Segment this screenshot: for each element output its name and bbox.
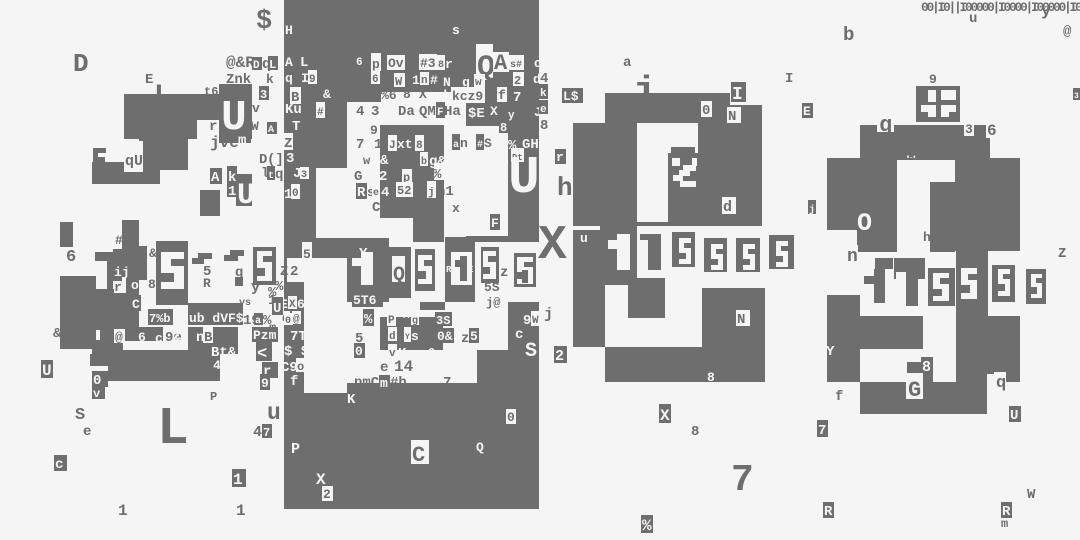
svg-text:7: 7 — [513, 90, 521, 106]
svg-text:3: 3 — [965, 122, 973, 137]
svg-text:a: a — [255, 316, 261, 327]
svg-text:u: u — [267, 400, 281, 426]
svg-text:U: U — [237, 179, 255, 213]
svg-text:5: 5 — [470, 329, 478, 344]
svg-text:2: 2 — [514, 74, 521, 88]
svg-text:Da: Da — [398, 104, 415, 120]
svg-text:u: u — [969, 11, 977, 27]
svg-text:Z: Z — [280, 264, 288, 280]
svg-text:y: y — [508, 110, 515, 122]
svg-text:ij: ij — [114, 265, 130, 280]
svg-text:3: 3 — [301, 170, 307, 181]
svg-text:k: k — [540, 88, 547, 100]
svg-text:L: L — [154, 81, 171, 112]
svg-text:P: P — [291, 441, 300, 458]
svg-text:j: j — [633, 71, 656, 114]
svg-text:&: & — [323, 87, 331, 102]
svg-text:0&: 0& — [437, 329, 453, 344]
svg-text:b: b — [421, 156, 427, 168]
svg-text:W: W — [251, 119, 259, 134]
svg-text:<: < — [257, 345, 267, 364]
svg-text:&: & — [380, 153, 389, 169]
svg-text:3: 3 — [286, 151, 294, 167]
svg-text:(]: (] — [267, 152, 284, 168]
svg-text:e: e — [540, 104, 547, 116]
svg-text:ub dVF$: ub dVF$ — [189, 311, 244, 326]
svg-text:52: 52 — [397, 184, 411, 198]
svg-text:2: 2 — [290, 264, 298, 280]
svg-text:S: S — [484, 136, 492, 151]
svg-text:1: 1 — [118, 502, 128, 520]
svg-text:I: I — [301, 71, 309, 86]
svg-text:a: a — [623, 55, 632, 71]
svg-text:g: g — [879, 113, 892, 138]
svg-text:W: W — [532, 315, 539, 327]
svg-text:r: r — [556, 150, 564, 165]
svg-text:n: n — [460, 136, 468, 151]
svg-text:7: 7 — [443, 375, 451, 391]
svg-text:j: j — [428, 187, 435, 199]
svg-text:G: G — [354, 169, 362, 185]
svg-text:%: % — [433, 167, 442, 183]
svg-text:q: q — [996, 374, 1006, 393]
svg-text:P: P — [210, 390, 217, 404]
svg-text:U: U — [1010, 408, 1018, 424]
svg-text:Y: Y — [826, 344, 835, 360]
svg-text:Ov: Ov — [388, 56, 404, 71]
svg-text:8: 8 — [416, 140, 423, 152]
svg-text:p: p — [372, 57, 380, 72]
svg-text:0: 0 — [702, 103, 710, 119]
svg-text:j: j — [809, 204, 815, 216]
svg-text:&: & — [149, 246, 157, 261]
svg-text:3: 3 — [260, 88, 267, 102]
svg-text:1: 1 — [374, 137, 382, 153]
svg-text:A: A — [494, 51, 508, 76]
svg-text:5T6: 5T6 — [353, 293, 377, 308]
svg-text:I: I — [732, 85, 743, 105]
svg-text:n: n — [847, 247, 858, 267]
svg-text:u: u — [580, 231, 588, 246]
svg-text:1: 1 — [233, 471, 243, 489]
svg-text:U: U — [508, 148, 540, 208]
svg-text:$ $: $ $ — [284, 344, 309, 360]
svg-text:pmC: pmC — [354, 375, 380, 391]
svg-text:n: n — [421, 75, 428, 87]
svg-text:9: 9 — [309, 74, 316, 86]
svg-text:t: t — [268, 171, 274, 182]
svg-text:jve: jve — [210, 134, 239, 152]
svg-text:6: 6 — [372, 74, 379, 86]
svg-text:f: f — [498, 88, 506, 103]
svg-text:7: 7 — [356, 137, 364, 153]
svg-text:L: L — [157, 399, 189, 459]
svg-text:9: 9 — [929, 72, 937, 87]
svg-text:#h: #h — [390, 375, 407, 391]
svg-text:Ku: Ku — [285, 102, 302, 118]
svg-text:2: 2 — [379, 169, 387, 185]
svg-text:A: A — [268, 125, 274, 136]
svg-text:2: 2 — [555, 348, 564, 365]
svg-text:1: 1 — [236, 502, 246, 520]
svg-text:%: % — [364, 312, 373, 328]
svg-text:H: H — [285, 23, 293, 38]
svg-text:00|I0||I00000|I0000|I00000|I0: 00|I0||I00000|I0000|I00000|I0 — [921, 0, 1080, 15]
svg-text:y: y — [251, 279, 260, 296]
svg-text:0: 0 — [507, 410, 515, 425]
svg-text:P: P — [388, 315, 395, 327]
svg-text:E: E — [803, 104, 811, 119]
svg-text:T: T — [292, 119, 300, 135]
svg-text:9: 9 — [261, 376, 269, 391]
svg-text:qU: qU — [125, 153, 143, 170]
svg-text:8: 8 — [707, 370, 715, 385]
svg-text:C: C — [372, 200, 381, 216]
svg-text:2: 2 — [323, 487, 331, 502]
svg-text:14: 14 — [394, 358, 414, 376]
svg-text:c: c — [55, 457, 63, 473]
svg-text:X: X — [490, 104, 498, 119]
svg-text:E: E — [468, 265, 474, 275]
svg-text:&: & — [53, 326, 62, 342]
svg-text:m: m — [1001, 517, 1008, 531]
svg-text:L: L — [443, 87, 451, 102]
svg-text:N: N — [728, 109, 736, 125]
svg-text:#: # — [115, 233, 123, 248]
svg-text:v: v — [93, 387, 100, 401]
svg-text:F: F — [491, 216, 499, 231]
svg-text:Q: Q — [476, 440, 484, 455]
svg-text:8: 8 — [691, 424, 699, 440]
svg-text:@: @ — [115, 330, 123, 345]
svg-text:9: 9 — [370, 123, 378, 138]
svg-text:e: e — [83, 424, 91, 440]
svg-text:em: em — [163, 251, 174, 261]
svg-text:d: d — [723, 199, 732, 216]
svg-text:F: F — [437, 107, 444, 119]
svg-text:0: 0 — [292, 188, 299, 200]
svg-text:h: h — [557, 173, 573, 203]
svg-text:Znk: Znk — [226, 72, 251, 88]
svg-text:S: S — [525, 340, 537, 363]
svg-text:4: 4 — [253, 424, 262, 441]
svg-text:%: % — [642, 517, 652, 535]
svg-text:X: X — [419, 87, 427, 102]
svg-text:E: E — [145, 72, 153, 88]
svg-text:t6: t6 — [204, 85, 218, 99]
svg-text:Ha: Ha — [444, 104, 461, 120]
svg-text:Y: Y — [405, 333, 410, 342]
svg-text:Z: Z — [172, 329, 181, 346]
svg-text:D: D — [253, 60, 260, 72]
svg-text:#: # — [430, 73, 438, 88]
svg-text:A: A — [211, 170, 220, 186]
svg-text:R: R — [203, 276, 211, 291]
svg-text:m: m — [269, 321, 276, 335]
svg-text:7: 7 — [731, 459, 754, 502]
svg-text:L: L — [269, 58, 276, 72]
svg-text:7%b: 7%b — [149, 312, 171, 326]
svg-text:x: x — [452, 201, 460, 216]
svg-text:7: 7 — [818, 423, 826, 439]
svg-text:@&R: @&R — [226, 54, 255, 72]
svg-text:O: O — [857, 209, 872, 238]
svg-text:@: @ — [1063, 24, 1072, 40]
svg-text:B: B — [204, 330, 213, 346]
svg-text:8: 8 — [403, 87, 411, 102]
svg-text:q: q — [285, 71, 293, 86]
svg-text:M: M — [403, 310, 410, 322]
svg-text:e: e — [380, 360, 388, 376]
svg-text:b: b — [843, 24, 854, 46]
svg-text:W: W — [1027, 487, 1036, 503]
svg-text:kcz9: kcz9 — [452, 89, 483, 104]
svg-text:j: j — [544, 306, 553, 323]
svg-text:G: G — [908, 378, 921, 403]
svg-text:1: 1 — [412, 73, 420, 88]
svg-text:xt: xt — [397, 137, 413, 152]
svg-text:8: 8 — [500, 121, 507, 135]
svg-text:$: $ — [256, 7, 272, 37]
svg-text:U: U — [273, 301, 281, 317]
svg-text:R: R — [824, 504, 833, 520]
svg-text:X: X — [289, 299, 296, 311]
svg-text:8: 8 — [438, 60, 444, 71]
svg-text:m: m — [238, 133, 246, 149]
svg-text:L$: L$ — [563, 89, 579, 104]
svg-text:e: e — [373, 188, 379, 199]
svg-text:r: r — [209, 119, 217, 135]
svg-text:U: U — [42, 362, 52, 380]
svg-text:h1: h1 — [437, 184, 454, 200]
svg-text:#: # — [477, 140, 483, 151]
svg-text:3S: 3S — [436, 314, 450, 328]
svg-text:$E: $E — [468, 106, 485, 122]
svg-text:C: C — [132, 297, 140, 312]
svg-text:L: L — [300, 55, 308, 71]
svg-text:Q: Q — [393, 264, 405, 287]
svg-text:f: f — [835, 389, 843, 405]
svg-text:7T: 7T — [290, 329, 307, 345]
svg-text:I: I — [785, 71, 793, 87]
svg-text:w: w — [363, 154, 371, 168]
svg-text:@: @ — [293, 314, 300, 326]
svg-text:o: o — [297, 360, 304, 374]
svg-text:g: g — [412, 316, 418, 327]
svg-text:W: W — [395, 75, 403, 89]
svg-text:0: 0 — [428, 346, 435, 360]
svg-text:s: s — [452, 23, 460, 38]
svg-text:6: 6 — [356, 57, 363, 69]
svg-text:j@: j@ — [486, 296, 500, 310]
svg-text:7: 7 — [263, 426, 270, 440]
svg-text:Y: Y — [359, 246, 368, 262]
svg-text:z: z — [500, 265, 508, 281]
svg-text:Z: Z — [1058, 246, 1066, 262]
svg-text:v: v — [252, 101, 260, 116]
svg-text:k: k — [266, 72, 274, 87]
svg-text:f: f — [290, 374, 298, 390]
svg-text:Z: Z — [284, 136, 292, 152]
svg-text:m: m — [380, 376, 388, 391]
svg-text:R: R — [446, 265, 452, 275]
svg-text:r: r — [445, 57, 453, 72]
svg-text:o: o — [131, 278, 139, 293]
svg-text:S: S — [75, 406, 85, 425]
svg-text:h: h — [923, 230, 931, 245]
svg-text:N: N — [737, 312, 745, 328]
svg-text:s: s — [411, 329, 419, 344]
svg-text:6: 6 — [987, 122, 997, 140]
svg-text:1: 1 — [228, 184, 236, 200]
svg-text:R: R — [357, 185, 366, 201]
svg-text:s#: s# — [510, 60, 522, 71]
svg-text:0: 0 — [355, 344, 363, 359]
svg-text:a: a — [453, 140, 459, 151]
svg-text:J: J — [389, 140, 396, 152]
svg-text:9: 9 — [523, 313, 531, 329]
svg-text:K: K — [347, 392, 356, 408]
svg-text:5: 5 — [303, 247, 311, 262]
svg-text:#3: #3 — [420, 56, 436, 71]
svg-text:3: 3 — [371, 104, 379, 120]
svg-text:6: 6 — [66, 248, 76, 267]
svg-text:z: z — [461, 331, 469, 347]
svg-text:8: 8 — [148, 277, 156, 292]
svg-text:D: D — [73, 49, 89, 79]
svg-text:c: c — [515, 327, 523, 343]
svg-text:r: r — [114, 280, 122, 295]
svg-text:X: X — [660, 407, 670, 425]
svg-text:y: y — [1041, 2, 1051, 21]
svg-text:0: 0 — [285, 316, 291, 327]
svg-text:C: C — [412, 443, 425, 468]
svg-text:4: 4 — [356, 104, 364, 120]
svg-text:4: 4 — [381, 185, 389, 201]
svg-text:#: # — [317, 107, 324, 119]
svg-text:6: 6 — [297, 297, 305, 312]
svg-text:A: A — [285, 55, 293, 70]
svg-text:QM: QM — [419, 104, 436, 120]
svg-text:d: d — [389, 331, 396, 343]
svg-text:X: X — [538, 219, 567, 273]
svg-text:4: 4 — [213, 358, 221, 373]
svg-text:6: 6 — [138, 330, 146, 345]
svg-text:q: q — [275, 167, 283, 183]
svg-text:o: o — [534, 56, 542, 71]
svg-text:8: 8 — [922, 359, 931, 376]
svg-text:c: c — [155, 331, 163, 346]
svg-text:%6: %6 — [381, 88, 397, 103]
svg-text:8: 8 — [540, 118, 548, 134]
svg-text:3: 3 — [1074, 92, 1079, 101]
svg-text:5S: 5S — [484, 280, 500, 295]
